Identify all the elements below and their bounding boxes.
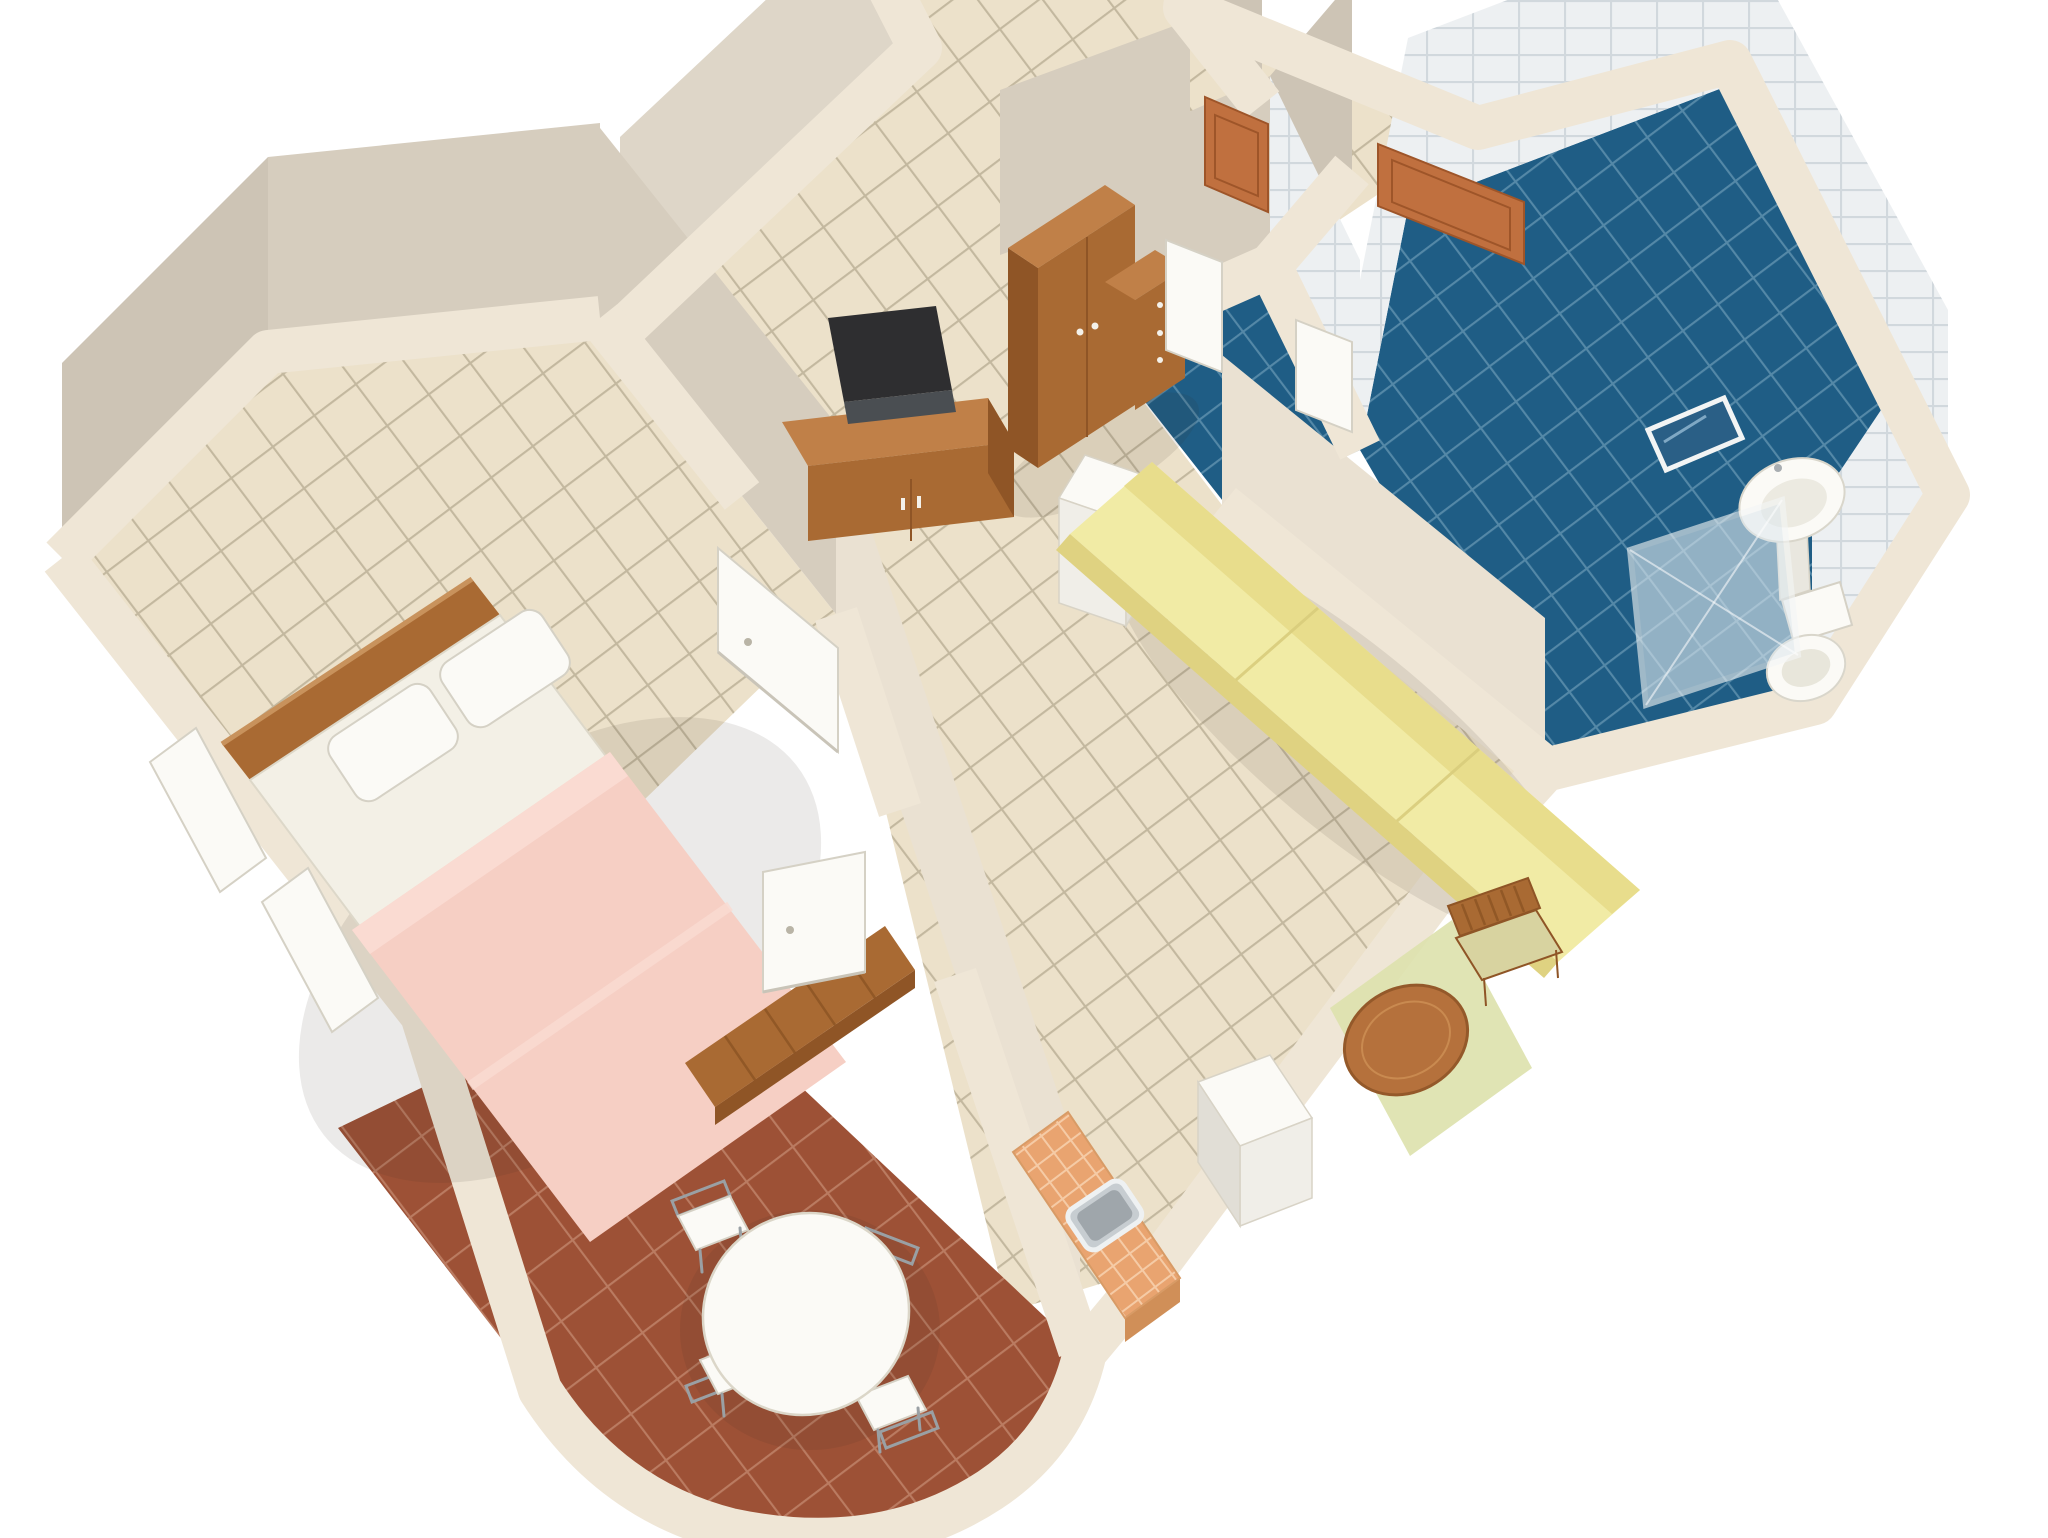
tv-cabinet-handle [917, 496, 921, 508]
wardrobe-handle [1077, 329, 1084, 336]
tv [828, 306, 956, 424]
dining-door [763, 852, 865, 992]
drawer-knob [1157, 357, 1163, 363]
door-handle [744, 638, 752, 646]
tv-cabinet-handle [901, 498, 905, 510]
drawer-knob [1157, 330, 1163, 336]
floorplan-render [0, 0, 2048, 1538]
anteroom-door-white [1166, 240, 1222, 372]
tv-body [828, 306, 952, 402]
washbasin-tap [1774, 464, 1782, 472]
door-panel-white [763, 852, 865, 992]
floorplan-scene [0, 0, 2048, 1538]
drawer-knob [1157, 302, 1163, 308]
wardrobe-side [1008, 248, 1038, 468]
door-handle [786, 926, 794, 934]
wardrobe-handle [1092, 323, 1099, 330]
tv-cabinet [782, 398, 1014, 541]
